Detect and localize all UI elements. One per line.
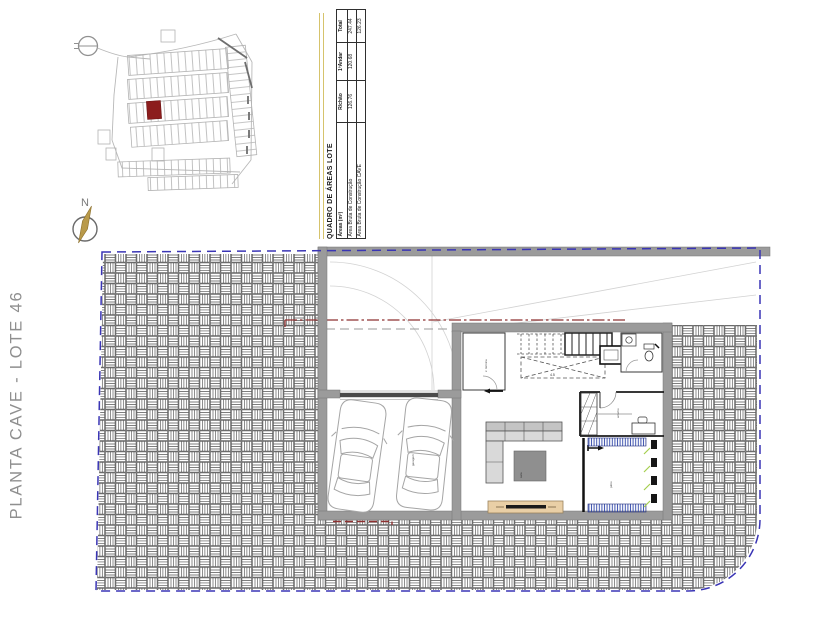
tv-cabinet-icon (488, 501, 563, 513)
garage-label: garagem (411, 454, 415, 466)
stairs-dimension: 4.5 (550, 373, 555, 377)
north-label: N (81, 197, 89, 209)
tech-room: z. técnica (463, 333, 505, 394)
site-location-plan (74, 30, 257, 191)
patio-label: pátio (609, 481, 613, 488)
grate-strip (588, 438, 646, 446)
storage-label: arrumo (616, 408, 620, 418)
north-compass: N (73, 197, 97, 243)
highlighted-lot-46 (146, 101, 161, 120)
wc-room (621, 333, 662, 372)
tech-room-label: z. técnica (484, 359, 488, 372)
grate-strip (588, 504, 646, 512)
living-label: sala (519, 472, 523, 478)
drawing-sheet: PLANTA CAVE - LOTE 46 QUADRO DE ÁREAS LO… (0, 0, 818, 639)
plan-drawing: N (0, 0, 818, 639)
compass-needle-icon (79, 206, 92, 243)
desk-icon (632, 423, 655, 434)
